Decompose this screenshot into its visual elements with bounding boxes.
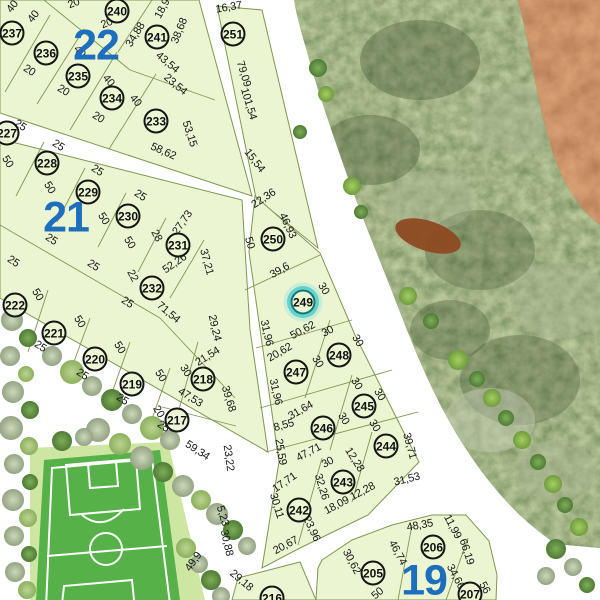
dimension-label: 5,23 <box>214 505 231 528</box>
lot-marker-245[interactable]: 245 <box>352 394 377 419</box>
lot-marker-233[interactable]: 233 <box>144 109 169 134</box>
dimension-label: 50 <box>95 211 111 227</box>
lot-marker-232[interactable]: 232 <box>140 276 165 301</box>
lot-marker-216[interactable]: 216 <box>260 586 285 600</box>
dimension-label: 30 <box>366 418 382 434</box>
dimension-label: 50 <box>29 287 45 303</box>
dimension-label: 50 <box>152 368 168 384</box>
dimension-label: 30 <box>348 376 364 392</box>
dimension-label: 30 <box>320 324 336 339</box>
dimension-label: 25 <box>89 163 105 179</box>
dimension-label: 22 <box>124 268 139 284</box>
lot-marker-205[interactable]: 205 <box>361 561 386 586</box>
block-number-21: 21 <box>43 194 89 243</box>
dimension-label: 50 <box>242 236 256 251</box>
dimension-label: 18,9 <box>153 0 172 21</box>
dimension-label: 50 <box>71 314 87 330</box>
dimension-label: 32,26 <box>312 473 330 502</box>
dimension-label: 30 <box>315 281 331 297</box>
dimension-label: 17,71 <box>271 471 299 495</box>
dimension-label: 40 <box>5 0 21 15</box>
dimension-label: 25,59 <box>272 438 287 466</box>
lot-marker-207[interactable]: 207 <box>458 582 483 600</box>
dimension-label: 11,99 <box>441 513 463 541</box>
dimension-label: 39,68 <box>219 385 237 414</box>
dimension-label: 30 <box>349 333 365 349</box>
dimension-label: 25 <box>5 254 21 270</box>
dimension-label: 28 <box>148 228 163 244</box>
lot-marker-249[interactable]: 249 <box>291 290 316 315</box>
dimension-label: 38,68 <box>170 17 190 46</box>
dimension-label: 50 <box>370 586 386 600</box>
dimension-label: 23,54 <box>161 72 188 97</box>
lot-marker-228[interactable]: 228 <box>35 151 60 176</box>
dimension-label: 30,11 <box>267 492 285 520</box>
dimension-label: 20 <box>55 83 71 99</box>
dimension-label: 29,24 <box>206 314 223 342</box>
dimension-label: 39,71 <box>400 432 417 460</box>
dimension-label: 31,96 <box>267 378 284 406</box>
dimension-label: 37,21 <box>197 248 214 276</box>
dimension-label: 25 <box>132 188 148 204</box>
dimension-label: 53,15 <box>180 120 199 149</box>
dimension-label: 66,19 <box>457 538 476 567</box>
dimension-label: 20 <box>21 63 37 79</box>
dimension-label: 50 <box>0 154 15 170</box>
dimension-label: 16,37 <box>215 0 243 15</box>
lot-marker-218[interactable]: 218 <box>191 367 216 392</box>
dimension-label: 20 <box>66 0 81 11</box>
lot-marker-243[interactable]: 243 <box>331 470 356 495</box>
dimension-label: 49,9 <box>184 550 205 573</box>
dimension-label: 50 <box>121 235 137 251</box>
lot-marker-217[interactable]: 217 <box>165 408 190 433</box>
dimension-label: 50 <box>111 340 127 356</box>
dimension-label: 40 <box>127 93 143 109</box>
lot-marker-220[interactable]: 220 <box>83 347 108 372</box>
dimension-label: 30,62 <box>340 548 362 577</box>
dimension-label: 21,54 <box>194 345 222 368</box>
dimension-label: 79,09 <box>234 60 252 89</box>
dimension-label: 8,55 <box>273 418 296 434</box>
dimension-label: 25 <box>85 258 101 274</box>
dimension-label: 20,67 <box>272 535 301 557</box>
block-number-22: 22 <box>73 22 119 71</box>
dimension-label: 30 <box>320 455 336 470</box>
labels-layer: 4040202034,8818,938,6843,5423,5420202040… <box>0 0 600 600</box>
dimension-label: 71,54 <box>154 300 181 325</box>
lot-marker-250[interactable]: 250 <box>261 227 286 252</box>
lot-marker-234[interactable]: 234 <box>100 86 125 111</box>
dimension-label: 31,53 <box>393 471 421 488</box>
lot-marker-247[interactable]: 247 <box>284 360 309 385</box>
dimension-label: 39,6 <box>268 261 291 281</box>
dimension-label: 30 <box>335 411 351 427</box>
lot-marker-246[interactable]: 246 <box>311 416 336 441</box>
dimension-label: 58,62 <box>149 142 178 163</box>
dimension-label: 59,34 <box>183 439 211 463</box>
dimension-label: 101,54 <box>238 87 258 121</box>
lot-marker-231[interactable]: 231 <box>166 233 191 258</box>
dimension-label: 23,22 <box>221 444 236 472</box>
dimension-label: 30,88 <box>218 529 235 557</box>
lot-marker-248[interactable]: 248 <box>327 343 352 368</box>
lot-marker-237[interactable]: 237 <box>0 21 25 46</box>
dimension-label: 48,35 <box>406 518 434 533</box>
lot-marker-241[interactable]: 241 <box>145 25 170 50</box>
dimension-label: 22,36 <box>250 187 278 211</box>
block-number-19: 19 <box>401 557 447 600</box>
dimension-label: 29,18 <box>227 568 254 593</box>
lot-marker-236[interactable]: 236 <box>34 41 59 66</box>
dimension-label: 31,96 <box>258 319 275 347</box>
dimension-label: 15,54 <box>241 147 266 175</box>
lot-marker-222[interactable]: 222 <box>3 293 28 318</box>
lot-marker-219[interactable]: 219 <box>120 372 145 397</box>
lot-marker-227[interactable]: 227 <box>0 121 20 146</box>
parcel-map: 4040202034,8818,938,6843,5423,5420202040… <box>0 0 600 600</box>
lot-marker-244[interactable]: 244 <box>374 434 399 459</box>
dimension-label: 20 <box>150 404 166 420</box>
lot-marker-230[interactable]: 230 <box>116 204 141 229</box>
dimension-label: 50,62 <box>289 320 318 342</box>
dimension-label: 47,71 <box>295 442 324 464</box>
dimension-label: 40 <box>26 9 42 25</box>
dimension-label: 20 <box>90 110 106 126</box>
lot-marker-221[interactable]: 221 <box>42 321 67 346</box>
dimension-label: 30 <box>309 354 325 370</box>
lot-marker-240[interactable]: 240 <box>105 0 130 24</box>
dimension-label: 25 <box>119 295 135 311</box>
lot-marker-251[interactable]: 251 <box>221 22 246 47</box>
lot-marker-242[interactable]: 242 <box>287 498 312 523</box>
